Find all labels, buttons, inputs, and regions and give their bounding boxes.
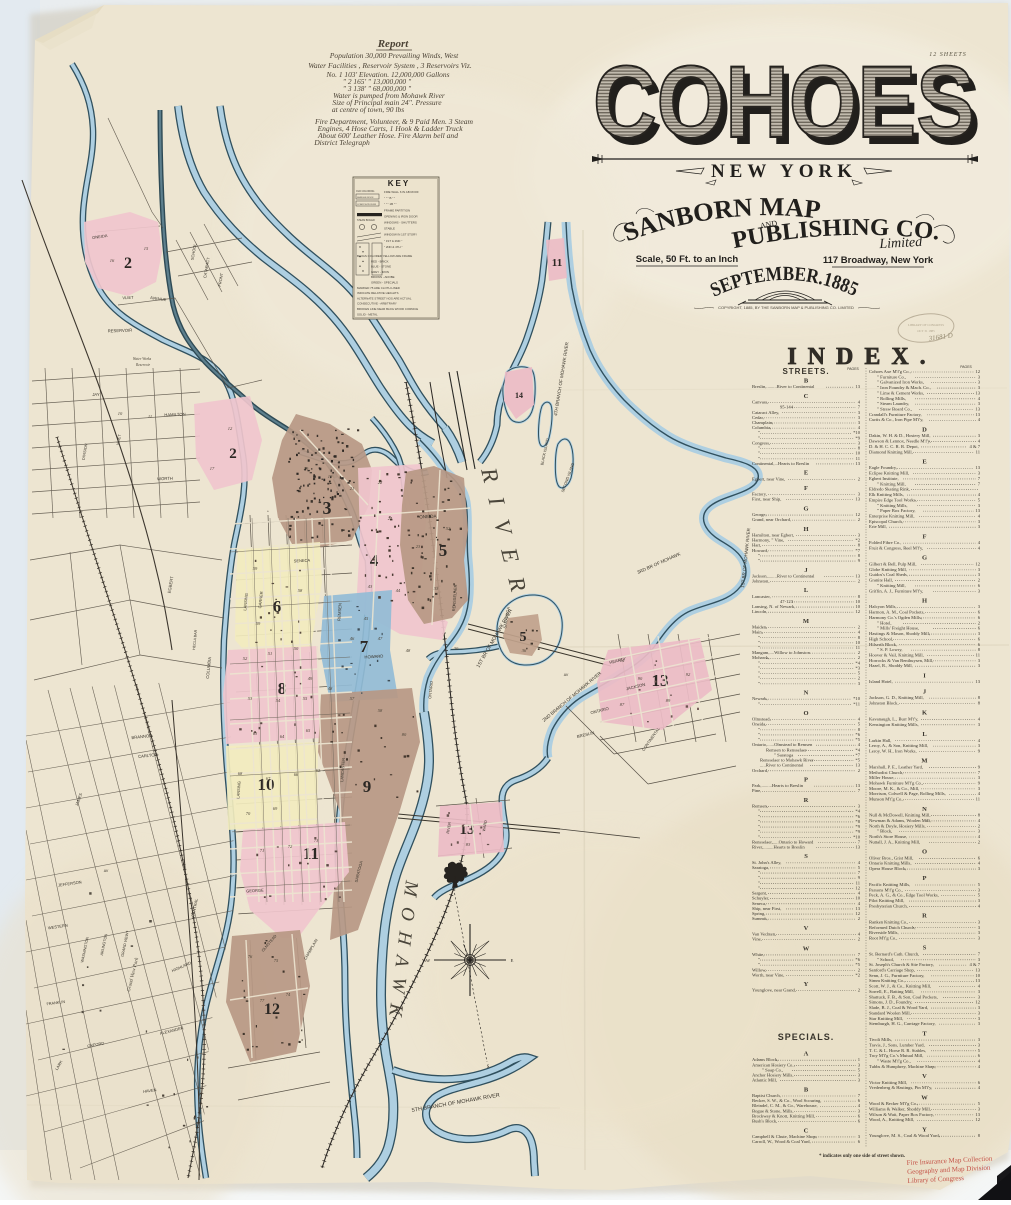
svg-text:R: R: [804, 797, 809, 804]
svg-text:4 & 7: 4 & 7: [970, 962, 981, 967]
svg-text:11: 11: [148, 414, 152, 419]
svg-text:BROKEN LINE NEAR BLDG WOOD COR: BROKEN LINE NEAR BLDG WOOD CORNICE: [357, 307, 418, 311]
svg-text:E: E: [922, 458, 926, 465]
svg-text:STEAM BOILER: STEAM BOILER: [357, 219, 375, 222]
svg-text:M: M: [803, 618, 809, 625]
svg-text:36: 36: [522, 648, 527, 653]
svg-text:63: 63: [253, 731, 258, 736]
svg-text:13: 13: [855, 461, 860, 466]
svg-text:OLD COLORING: OLD COLORING: [356, 190, 374, 193]
svg-text:13: 13: [855, 384, 860, 389]
svg-text:" 1ST & 2ND ": " 1ST & 2ND ": [384, 239, 402, 243]
svg-text:76: 76: [248, 954, 253, 959]
svg-text:23: 23: [416, 544, 421, 549]
svg-text:PAGES: PAGES: [847, 367, 859, 371]
svg-text:48: 48: [328, 686, 333, 691]
svg-text:12 SHEETS: 12 SHEETS: [929, 52, 967, 58]
svg-text:66: 66: [294, 772, 299, 777]
svg-text:12: 12: [975, 1117, 980, 1122]
svg-text:49: 49: [308, 676, 313, 681]
svg-text:51: 51: [268, 651, 273, 656]
svg-text:E: E: [804, 470, 808, 477]
svg-text:58: 58: [378, 708, 383, 713]
svg-text:WINDOWS - SHUTTERS: WINDOWS - SHUTTERS: [384, 221, 417, 225]
svg-text:13: 13: [975, 968, 980, 973]
svg-text:10: 10: [118, 411, 123, 416]
svg-text:at centre of town, 90 lbs: at centre of town, 90 lbs: [332, 105, 404, 114]
svg-text:Y: Y: [804, 981, 809, 988]
svg-text:COMPOSITION RF: COMPOSITION RF: [357, 204, 377, 206]
svg-text:30: 30: [454, 646, 459, 651]
svg-text:S: S: [487, 1065, 490, 1070]
svg-text:67: 67: [266, 776, 271, 781]
svg-text:92: 92: [686, 672, 691, 677]
svg-text:11: 11: [976, 797, 981, 802]
svg-text:59: 59: [256, 621, 261, 626]
svg-text:83: 83: [466, 842, 471, 847]
svg-text:VLIET: VLIET: [122, 295, 134, 301]
svg-text:Report: Report: [377, 38, 410, 50]
svg-text:LIBRARY OF CONGRESS: LIBRARY OF CONGRESS: [908, 323, 944, 327]
svg-text:OCT 31 1885: OCT 31 1885: [917, 329, 935, 333]
svg-text:JAY: JAY: [92, 392, 100, 397]
svg-text:68: 68: [238, 771, 243, 776]
svg-text:P: P: [923, 875, 927, 882]
svg-text:77: 77: [260, 998, 265, 1003]
svg-text:Limited: Limited: [878, 235, 924, 252]
svg-text:S: S: [923, 945, 927, 952]
svg-text:L: L: [804, 587, 809, 594]
svg-text:* indicates only one side of s: * indicates only one side of street show…: [819, 1154, 906, 1159]
svg-text:55: 55: [303, 696, 308, 701]
svg-text:45: 45: [364, 616, 369, 621]
svg-text:CONSECUTIVE - ARBITRARY: CONSECUTIVE - ARBITRARY: [357, 302, 397, 306]
svg-text:75: 75: [274, 958, 279, 963]
svg-text:12: 12: [855, 609, 860, 614]
svg-text:N: N: [804, 690, 809, 697]
svg-text:F: F: [923, 533, 927, 540]
svg-text:64: 64: [280, 734, 285, 739]
svg-text:29: 29: [304, 466, 309, 471]
svg-text:12: 12: [975, 561, 980, 566]
svg-text:K: K: [922, 710, 927, 717]
svg-text:Scale, 50 Ft. to an Inch: Scale, 50 Ft. to an Inch: [636, 254, 739, 265]
svg-text:P: P: [804, 777, 808, 784]
svg-text:57: 57: [350, 696, 355, 701]
svg-text:C: C: [804, 393, 809, 400]
svg-text:73: 73: [314, 838, 319, 843]
svg-text:T: T: [922, 1030, 927, 1037]
svg-text:ALTERNATE STREET NOS ARE ACTUA: ALTERNATE STREET NOS ARE ACTUAL: [357, 296, 412, 300]
svg-text:53: 53: [248, 696, 253, 701]
svg-text:OPENING & IRON DOOR: OPENING & IRON DOOR: [384, 214, 418, 218]
svg-text:Reservoir: Reservoir: [135, 363, 151, 367]
svg-text:11: 11: [552, 257, 562, 269]
svg-text:”: ”: [758, 701, 760, 706]
svg-text:MARKED 75 ARE CLOTH LINED: MARKED 75 ARE CLOTH LINED: [357, 286, 400, 290]
svg-text:11: 11: [303, 844, 319, 863]
svg-text:21: 21: [350, 486, 355, 491]
svg-text:GREEN - SPECIALS: GREEN - SPECIALS: [371, 281, 398, 285]
svg-text:S: S: [804, 853, 808, 860]
svg-text:13: 13: [855, 497, 860, 502]
svg-text:13: 13: [975, 465, 980, 470]
svg-text:Water Works: Water Works: [133, 357, 152, 361]
svg-text:2: 2: [229, 446, 237, 462]
svg-text:19: 19: [328, 474, 333, 479]
svg-text:ONEIDA: ONEIDA: [419, 514, 437, 520]
svg-text:STREETS.: STREETS.: [782, 367, 829, 376]
svg-text:*11: *11: [853, 701, 860, 706]
svg-text:43: 43: [368, 584, 373, 589]
svg-text:13: 13: [975, 679, 980, 684]
svg-text:12: 12: [264, 1001, 280, 1018]
svg-text:H: H: [922, 597, 927, 604]
svg-text:13: 13: [975, 1112, 980, 1117]
svg-text:H: H: [803, 526, 808, 533]
svg-text:W: W: [921, 1094, 928, 1101]
svg-text:BLUE - STONE: BLUE - STONE: [371, 265, 391, 269]
svg-text:95-144: 95-144: [780, 405, 794, 410]
svg-text:RESERVOIR: RESERVOIR: [108, 328, 133, 334]
svg-text:59: 59: [253, 566, 258, 571]
svg-text:Population 30,000 Prevailing: Population 30,000 Prevailing Winds, West: [329, 51, 459, 60]
svg-text:16: 16: [110, 258, 115, 263]
svg-text:GREY - IRON: GREY - IRON: [371, 270, 389, 274]
svg-text:44: 44: [396, 588, 401, 593]
svg-text:Water Facilities , Reservoir: Water Facilities , Reservoir System , 3 …: [308, 61, 472, 70]
svg-text:24: 24: [388, 516, 393, 521]
svg-text:O: O: [922, 849, 927, 856]
svg-text:SOLID - METAL: SOLID - METAL: [357, 312, 378, 316]
svg-text:”: ”: [758, 681, 760, 686]
svg-text:15: 15: [144, 246, 149, 251]
svg-text:SHINGLE ROOF: SHINGLE ROOF: [357, 197, 374, 199]
svg-text:7: 7: [360, 637, 369, 656]
svg-text:94: 94: [620, 658, 625, 663]
svg-text:KEY: KEY: [388, 179, 410, 188]
svg-text:INDICATE RELATIVE HEIGHTS: INDICATE RELATIVE HEIGHTS: [357, 291, 399, 295]
svg-text:117 Broadway, New York: 117 Broadway, New York: [823, 255, 934, 266]
svg-text:13: 13: [975, 508, 980, 513]
svg-text:12: 12: [228, 426, 233, 431]
svg-text:13: 13: [975, 412, 980, 417]
svg-text:13: 13: [975, 978, 980, 983]
svg-text:47: 47: [378, 636, 383, 641]
svg-text:NEW YORK: NEW YORK: [711, 161, 857, 182]
svg-text:BROWN - ADOBE: BROWN - ADOBE: [371, 275, 395, 279]
svg-text:AV: AV: [564, 673, 569, 677]
svg-text:W: W: [803, 945, 810, 952]
svg-text:PAGES: PAGES: [960, 365, 972, 369]
svg-text:74: 74: [286, 992, 291, 997]
svg-text:58: 58: [298, 588, 303, 593]
svg-text:65: 65: [306, 728, 311, 733]
svg-text:GEORGE: GEORGE: [246, 888, 264, 894]
svg-text:FRAME PARTITION: FRAME PARTITION: [384, 208, 410, 212]
svg-text:69: 69: [273, 806, 278, 811]
svg-text:RED - BRICK: RED - BRICK: [371, 259, 389, 263]
svg-text:12: 12: [975, 369, 980, 374]
svg-text:G: G: [922, 555, 927, 562]
svg-text:87: 87: [620, 702, 625, 707]
svg-text:54: 54: [276, 698, 281, 703]
svg-text:*2: *2: [855, 972, 860, 977]
svg-text:11: 11: [976, 652, 981, 657]
svg-text:71: 71: [260, 848, 265, 853]
svg-text:" 2ND & 4TH ": " 2ND & 4TH ": [384, 245, 402, 249]
svg-text:90: 90: [638, 676, 643, 681]
svg-text:13: 13: [855, 845, 860, 850]
svg-text:13: 13: [975, 407, 980, 412]
svg-text:District Telegraph: District Telegraph: [313, 138, 370, 147]
svg-text:17: 17: [210, 466, 215, 471]
svg-text:FIRE WALL 6 IN AB ROOF: FIRE WALL 6 IN AB ROOF: [384, 190, 419, 194]
svg-text:5: 5: [439, 541, 448, 560]
svg-text:R: R: [922, 913, 927, 920]
svg-text:L: L: [922, 731, 927, 738]
svg-text:12: 12: [975, 1000, 980, 1005]
svg-text:50: 50: [294, 646, 299, 651]
svg-text:52: 52: [243, 656, 248, 661]
svg-text:WINDOW IN 1ST STORY: WINDOW IN 1ST STORY: [384, 233, 417, 237]
svg-text:”: ”: [758, 558, 760, 563]
svg-text:A: A: [804, 1051, 809, 1058]
svg-text:BLDGS COLORED YELLOW ARE FRAME: BLDGS COLORED YELLOW ARE FRAME: [357, 254, 412, 258]
svg-text:AV: AV: [104, 869, 109, 873]
svg-text:SPECIALS.: SPECIALS.: [778, 1032, 835, 1042]
svg-text:G: G: [803, 505, 808, 512]
svg-text:89: 89: [666, 698, 671, 703]
svg-text:V: V: [922, 1073, 927, 1080]
svg-text:4 & 7: 4 & 7: [970, 444, 981, 449]
svg-text:HOWARD: HOWARD: [364, 654, 383, 660]
svg-text:SENECA: SENECA: [294, 558, 311, 564]
svg-text:E: E: [511, 958, 514, 963]
svg-text:B: B: [804, 1086, 809, 1093]
svg-text:STABLE: STABLE: [384, 227, 395, 231]
svg-text:22: 22: [378, 480, 383, 485]
svg-text:F: F: [804, 485, 808, 492]
svg-text:72: 72: [288, 844, 293, 849]
svg-text:63: 63: [316, 768, 321, 773]
svg-text:48: 48: [406, 648, 411, 653]
svg-text:" " " 1B " ": " " " 1B " ": [384, 202, 397, 206]
svg-text:13: 13: [975, 390, 980, 395]
svg-text:11: 11: [976, 449, 981, 454]
svg-text:V: V: [804, 925, 809, 932]
svg-text:COPYRIGHT, 1885, BY THE SANBOR: COPYRIGHT, 1885, BY THE SANBORN MAP & PU…: [718, 305, 854, 310]
svg-text:52: 52: [446, 526, 451, 531]
svg-text:O: O: [803, 710, 808, 717]
svg-text:2: 2: [124, 255, 132, 272]
svg-text:HAMILTON: HAMILTON: [164, 412, 185, 418]
svg-text:33: 33: [434, 586, 439, 591]
svg-text:10: 10: [975, 973, 980, 978]
svg-text:COHOES: COHOES: [593, 45, 975, 159]
svg-text:9: 9: [363, 777, 372, 796]
svg-text:3: 3: [323, 498, 332, 518]
svg-text:" " " B " ": " " " B " ": [384, 196, 395, 200]
svg-text:5: 5: [520, 630, 527, 645]
svg-text:80: 80: [402, 732, 407, 737]
svg-text:14: 14: [515, 391, 523, 400]
svg-text:70: 70: [246, 811, 251, 816]
svg-text:46: 46: [350, 636, 355, 641]
svg-text:WORTH: WORTH: [157, 476, 173, 482]
